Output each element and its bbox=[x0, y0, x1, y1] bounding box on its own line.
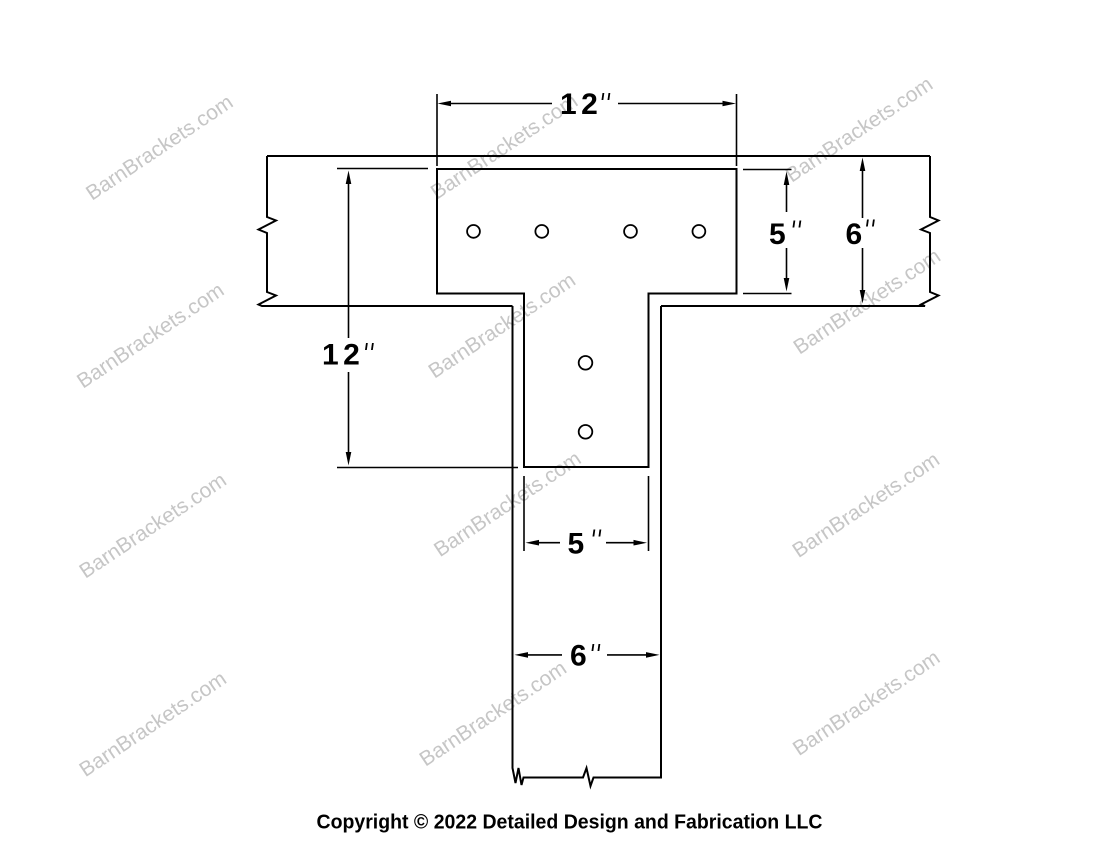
svg-text:6: 6 bbox=[570, 639, 587, 672]
svg-text:BarnBrackets.com: BarnBrackets.com bbox=[82, 91, 237, 206]
svg-text:BarnBrackets.com: BarnBrackets.com bbox=[789, 646, 944, 761]
svg-text:BarnBrackets.com: BarnBrackets.com bbox=[782, 73, 937, 188]
svg-text:5: 5 bbox=[568, 528, 585, 561]
svg-text:12: 12 bbox=[560, 88, 602, 121]
svg-text:BarnBrackets.com: BarnBrackets.com bbox=[415, 657, 570, 772]
svg-text:BarnBrackets.com: BarnBrackets.com bbox=[73, 279, 228, 394]
svg-text:BarnBrackets.com: BarnBrackets.com bbox=[789, 245, 944, 360]
svg-text:BarnBrackets.com: BarnBrackets.com bbox=[430, 447, 585, 562]
svg-text:6: 6 bbox=[846, 218, 863, 251]
svg-text:5: 5 bbox=[769, 218, 786, 251]
svg-text:BarnBrackets.com: BarnBrackets.com bbox=[427, 90, 582, 205]
svg-text:12: 12 bbox=[322, 339, 364, 372]
svg-text:BarnBrackets.com: BarnBrackets.com bbox=[75, 667, 230, 782]
svg-text:BarnBrackets.com: BarnBrackets.com bbox=[424, 269, 579, 384]
svg-text:BarnBrackets.com: BarnBrackets.com bbox=[788, 448, 943, 563]
svg-text:Copyright © 2022 Detailed Desi: Copyright © 2022 Detailed Design and Fab… bbox=[317, 812, 823, 834]
svg-text:BarnBrackets.com: BarnBrackets.com bbox=[75, 469, 230, 584]
